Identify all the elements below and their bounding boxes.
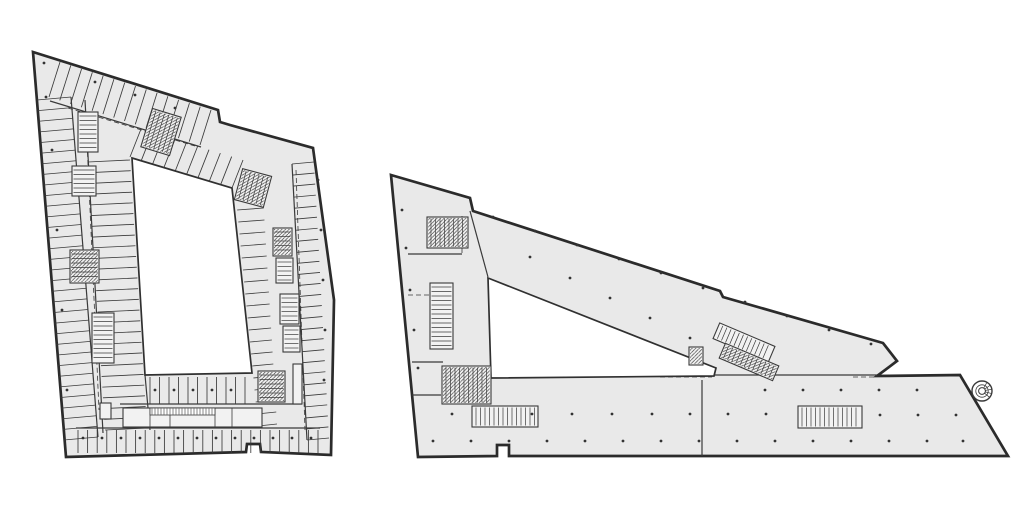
column-dot xyxy=(120,437,123,440)
column-dot xyxy=(812,440,815,443)
column-dot xyxy=(916,389,919,392)
column-dot xyxy=(508,440,511,443)
column-dot xyxy=(649,317,652,320)
column-dot xyxy=(764,389,767,392)
column-dot xyxy=(272,437,275,440)
stair-core xyxy=(100,403,111,419)
column-dot xyxy=(177,437,180,440)
column-dot xyxy=(651,413,654,416)
stair-core xyxy=(78,112,98,152)
column-dot xyxy=(158,437,161,440)
column-dot xyxy=(660,440,663,443)
column-dot xyxy=(689,413,692,416)
floor-plan-canvas xyxy=(0,0,1024,505)
column-dot xyxy=(569,277,572,280)
column-dot xyxy=(660,272,663,275)
column-dot xyxy=(94,81,97,84)
column-dot xyxy=(82,437,85,440)
core-hatch xyxy=(259,372,284,401)
stair-core xyxy=(92,313,114,363)
column-dot xyxy=(878,389,881,392)
column-dot xyxy=(584,440,587,443)
column-dot xyxy=(154,389,157,392)
right-building-plan xyxy=(391,175,1008,457)
stair-core xyxy=(280,294,299,324)
column-dot xyxy=(211,389,214,392)
column-dot xyxy=(850,440,853,443)
column-dot xyxy=(320,229,323,232)
column-dot xyxy=(840,389,843,392)
stair-core xyxy=(72,166,96,196)
column-dot xyxy=(291,437,294,440)
column-dot xyxy=(192,389,195,392)
column-dot xyxy=(546,440,549,443)
column-dot xyxy=(879,414,882,417)
column-dot xyxy=(215,437,218,440)
column-dot xyxy=(413,329,416,332)
stair-core xyxy=(472,406,538,427)
column-dot xyxy=(571,413,574,416)
column-dot xyxy=(727,413,730,416)
column-dot xyxy=(802,389,805,392)
column-dot xyxy=(405,247,408,250)
column-dot xyxy=(56,229,59,232)
column-dot xyxy=(870,343,873,346)
column-dot xyxy=(622,440,625,443)
column-dot xyxy=(401,209,404,212)
column-dot xyxy=(230,389,233,392)
column-dot xyxy=(765,413,768,416)
column-dot xyxy=(736,440,739,443)
column-dot xyxy=(45,96,48,99)
left-building-plan xyxy=(33,52,334,457)
stair-core xyxy=(798,406,862,428)
column-dot xyxy=(451,413,454,416)
column-dot xyxy=(101,437,104,440)
column-dot xyxy=(698,440,701,443)
spiral-stair-icon xyxy=(972,381,992,401)
column-dot xyxy=(66,389,69,392)
stair-core xyxy=(293,364,302,404)
column-dot xyxy=(955,414,958,417)
column-dot xyxy=(611,413,614,416)
column-dot xyxy=(774,440,777,443)
core-hatch xyxy=(71,251,98,282)
column-dot xyxy=(253,437,256,440)
column-dot xyxy=(139,437,142,440)
column-dot xyxy=(470,440,473,443)
column-dot xyxy=(43,62,46,65)
column-dot xyxy=(917,414,920,417)
core-hatch xyxy=(690,348,702,364)
core-hatch xyxy=(428,218,467,247)
column-dot xyxy=(409,289,412,292)
column-dot xyxy=(196,437,199,440)
column-dot xyxy=(324,329,327,332)
column-dot xyxy=(432,440,435,443)
column-dot xyxy=(51,149,54,152)
column-dot xyxy=(618,258,621,261)
column-dot xyxy=(534,230,537,233)
core-hatch xyxy=(274,229,291,255)
column-dot xyxy=(417,367,420,370)
column-dot xyxy=(888,440,891,443)
column-dot xyxy=(492,216,495,219)
column-dot xyxy=(310,437,313,440)
core-hatch xyxy=(443,367,490,403)
column-dot xyxy=(174,107,177,110)
column-dot xyxy=(234,437,237,440)
column-dot xyxy=(322,279,325,282)
column-dot xyxy=(828,329,831,332)
column-dot xyxy=(926,440,929,443)
entrance-dense-rect xyxy=(150,408,215,415)
column-dot xyxy=(689,337,692,340)
column-dot xyxy=(744,301,747,304)
column-dot xyxy=(323,379,326,382)
column-dot xyxy=(702,287,705,290)
stair-core xyxy=(430,283,453,349)
column-dot xyxy=(786,315,789,318)
column-dot xyxy=(576,244,579,247)
entrance-cluster xyxy=(123,408,262,427)
column-dot xyxy=(317,179,320,182)
column-dot xyxy=(531,413,534,416)
floor-plan-drawing xyxy=(0,0,1024,505)
column-dot xyxy=(61,309,64,312)
column-dot xyxy=(529,256,532,259)
column-dot xyxy=(962,440,965,443)
column-dot xyxy=(134,94,137,97)
column-dot xyxy=(173,389,176,392)
column-dot xyxy=(609,297,612,300)
